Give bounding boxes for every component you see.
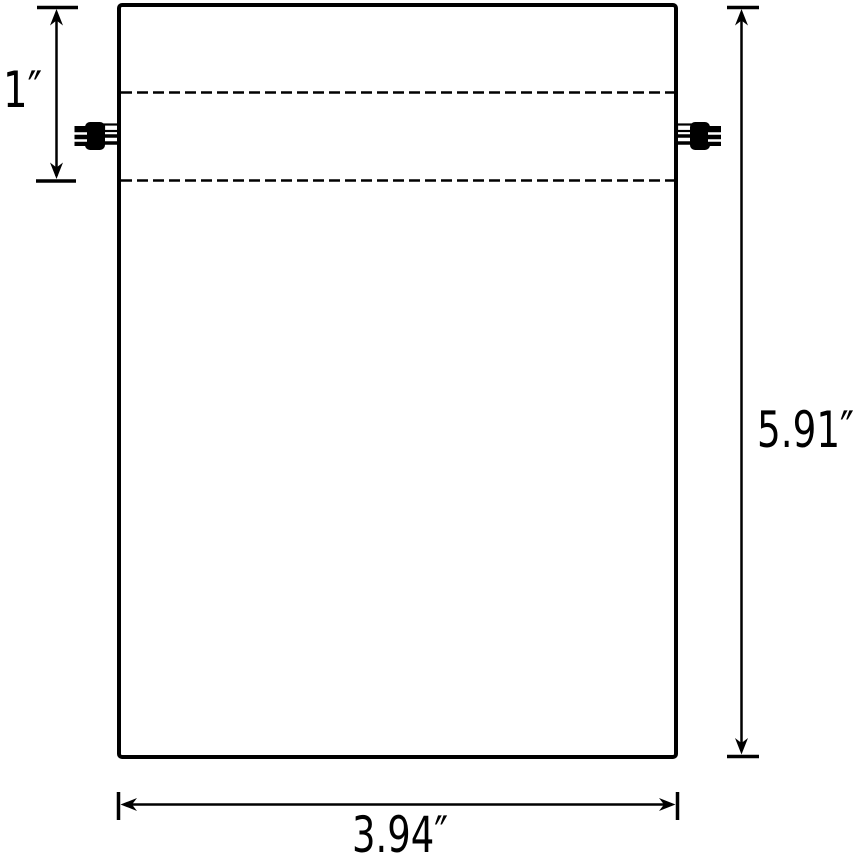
- hem-depth-label: 1″: [3, 61, 42, 119]
- cord-segment-left-top: [104, 125, 119, 132]
- bag-outline: [119, 5, 676, 757]
- dimension-bag-height: 5.91″: [727, 8, 854, 757]
- dimension-bag-width: 3.94″: [119, 792, 678, 856]
- bag-height-label: 5.91″: [757, 401, 854, 459]
- toggle-body-right: [690, 122, 710, 150]
- dimension-drawing: 1″ 5.91″ 3.94″: [0, 0, 857, 856]
- toggle-ribbed-end-right: [709, 126, 722, 146]
- toggle-ribbed-end-left: [75, 126, 88, 146]
- cord-lock-right-icon: [677, 122, 722, 150]
- bag-width-label: 3.94″: [352, 806, 448, 856]
- cord-lock-left-icon: [74, 122, 119, 150]
- toggle-body-left: [85, 122, 105, 150]
- cord-segment-right-top: [677, 125, 692, 132]
- diagram-canvas: 1″ 5.91″ 3.94″: [0, 0, 857, 856]
- dimension-hem-depth: 1″: [3, 8, 78, 182]
